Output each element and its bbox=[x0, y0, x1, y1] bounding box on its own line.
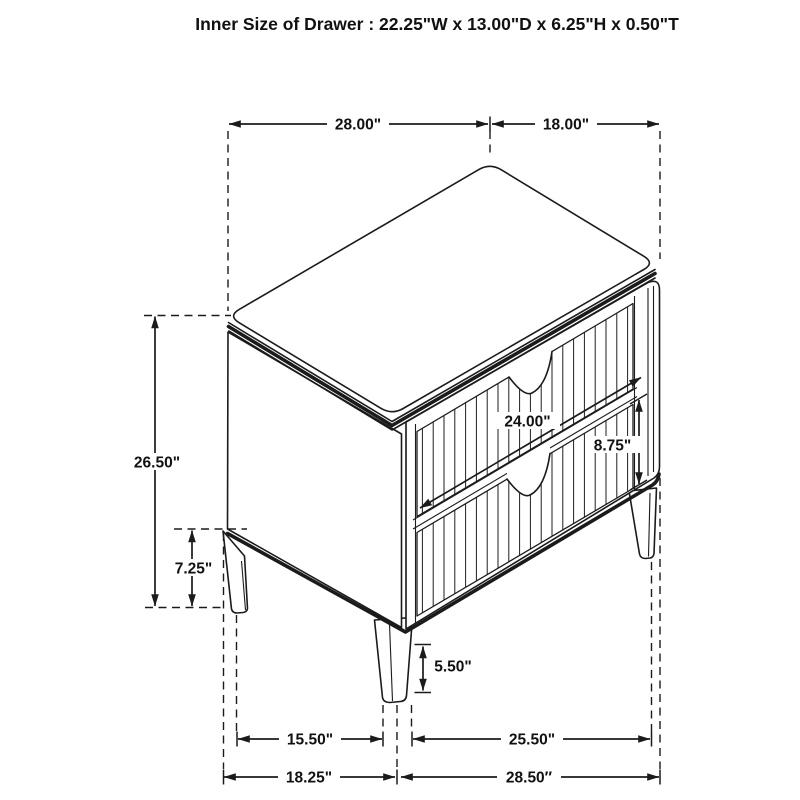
dim-top-width-label: 28.00" bbox=[335, 117, 381, 134]
dim-overall-height-label: 26.50" bbox=[134, 455, 180, 472]
diagram-title: Inner Size of Drawer : 22.25"W x 13.00"D… bbox=[195, 14, 679, 34]
dim-base-width-front-label: 28.50″ bbox=[506, 770, 553, 787]
dim-leg-height-label: 5.50" bbox=[434, 659, 472, 676]
dim-leg-span-side-label: 15.50" bbox=[287, 732, 333, 749]
nightstand-drawing bbox=[223, 166, 660, 702]
technical-drawing-page: 28.00" 18.00" 26.50" 7.25" 24.00" 8.75" … bbox=[0, 0, 800, 800]
dim-drawer-height-label: 8.75" bbox=[594, 438, 632, 455]
dim-leg-span-front-label: 25.50" bbox=[509, 732, 555, 749]
dim-drawer-width-label: 24.00" bbox=[504, 414, 550, 431]
dim-base-width-side-label: 18.25" bbox=[286, 770, 332, 787]
dim-base-clearance-label: 7.25" bbox=[175, 561, 213, 578]
dim-top-depth-label: 18.00" bbox=[543, 117, 589, 134]
nightstand-dimension-diagram: 28.00" 18.00" 26.50" 7.25" 24.00" 8.75" … bbox=[0, 0, 800, 800]
